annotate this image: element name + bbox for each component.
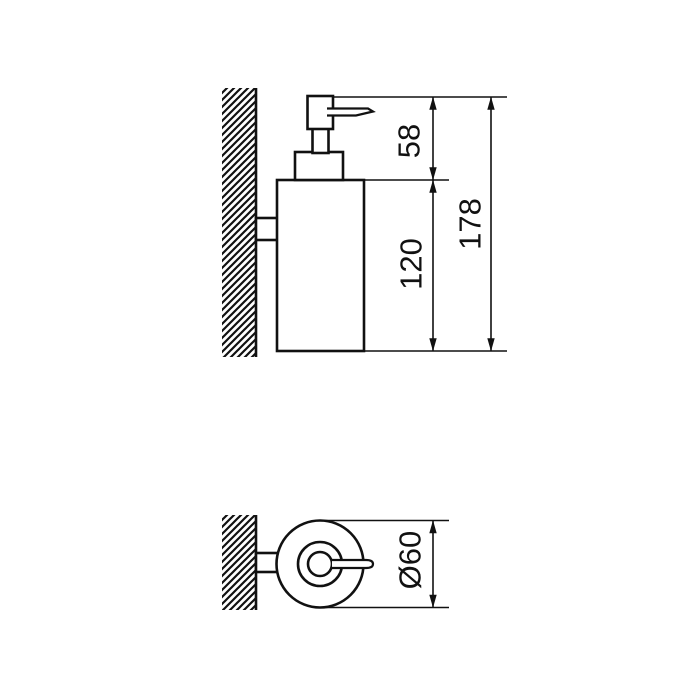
pump-stem [313, 127, 329, 153]
side-elevation-view: 58 120 178 [222, 88, 507, 357]
dim-label-pump-height: 58 [392, 124, 427, 158]
dim-label-diameter: Ø60 [393, 531, 428, 590]
wall-hatch-plan [222, 515, 256, 610]
dim-label-overall-height: 178 [453, 198, 488, 250]
plan-view: Ø60 [222, 515, 449, 610]
wall-hatch-side [222, 88, 256, 357]
pump-head-circle [308, 552, 332, 576]
pump-spout [327, 109, 373, 116]
dim-label-body-height: 120 [394, 238, 429, 290]
technical-drawing: 58 120 178 Ø60 [0, 0, 700, 700]
dispenser-body-outline [277, 180, 364, 351]
pump-spout-plan [332, 560, 373, 568]
mounting-bracket-side [256, 218, 278, 240]
pump-collar [295, 152, 343, 180]
drawing-canvas: 58 120 178 Ø60 [0, 0, 700, 700]
